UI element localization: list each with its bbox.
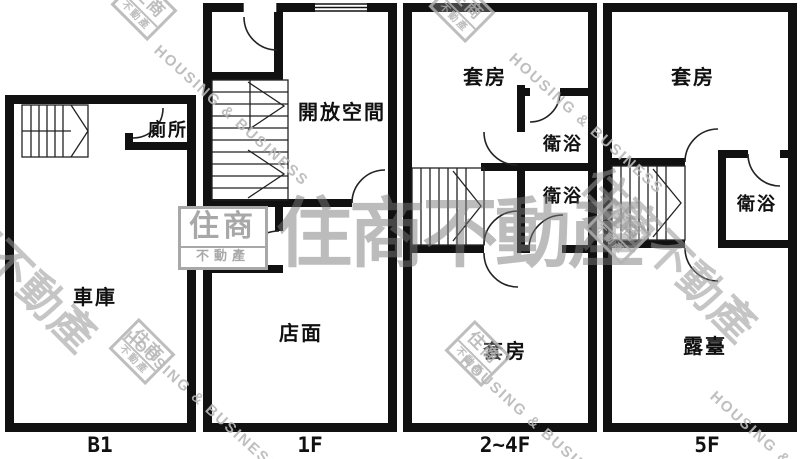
floor-caption-5f: 5F (662, 433, 752, 457)
room-label-storefront: 店面 (261, 317, 341, 346)
staircase (22, 105, 88, 157)
staircase (612, 166, 685, 240)
floor-plan-2-4f: 套房 衛浴 衛浴 套房 (403, 3, 597, 432)
brand-logo-watermark: 住商 不動產 (110, 0, 177, 41)
room-label-bathroom: 衛浴 (727, 190, 787, 216)
floor-caption-2-4f: 2~4F (460, 433, 550, 457)
floor-structure-b1 (5, 95, 196, 432)
floor-caption-1f: 1F (265, 433, 355, 457)
walls (5, 95, 196, 432)
floor-plan-b1: 車庫 廁所 (5, 95, 196, 432)
floor-caption-b1: B1 (55, 433, 145, 457)
room-label-suite-lower: 套房 (465, 335, 545, 364)
room-label-garage: 車庫 (55, 281, 135, 310)
staircase (412, 168, 484, 245)
floor-plan-1f: 開放空間 倉庫 店面 (203, 3, 397, 432)
room-label-suite: 套房 (653, 61, 733, 90)
floor-plan-5f: 套房 衛浴 露臺 (603, 3, 797, 432)
staircase (212, 80, 288, 200)
room-label-open-space: 開放空間 (282, 96, 402, 125)
room-label-terrace: 露臺 (665, 330, 745, 359)
room-label-toilet: 廁所 (140, 116, 196, 142)
room-label-bathroom-upper: 衛浴 (533, 130, 593, 156)
room-label-storage: 倉庫 (210, 215, 270, 241)
room-label-suite-upper: 套房 (445, 61, 525, 90)
floor-plan-image: 車庫 廁所 (0, 0, 800, 459)
room-label-bathroom-lower: 衛浴 (533, 182, 593, 208)
